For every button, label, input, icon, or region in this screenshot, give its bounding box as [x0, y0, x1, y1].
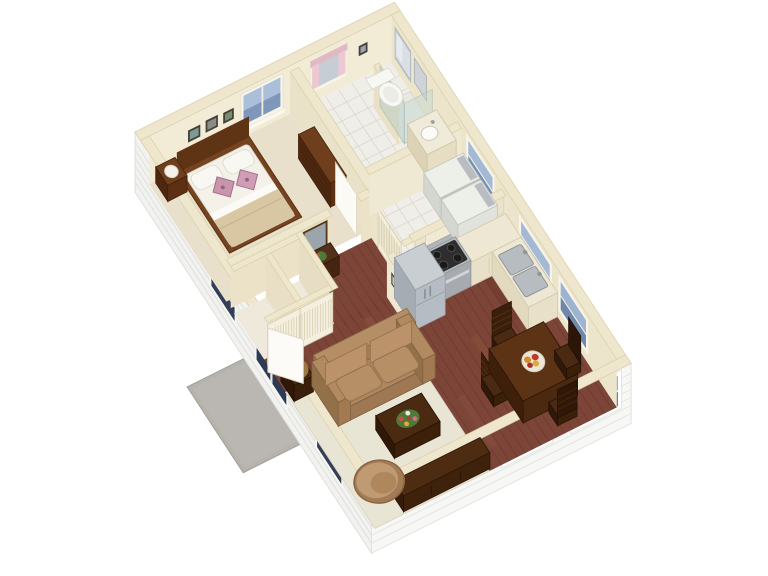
- floorplan-stage: [0, 0, 768, 576]
- bathroom-curtain-right: [339, 50, 346, 77]
- tv-console-panel-line: [460, 471, 461, 480]
- bedroom-window-mullion: [262, 86, 264, 116]
- apartment-3d-floorplan: [0, 0, 768, 576]
- cabinet-panel-line: [489, 257, 490, 273]
- bathroom-curtain-left: [312, 63, 319, 90]
- tv-console-panel-line: [431, 486, 432, 495]
- fridge-handle: [424, 289, 426, 300]
- fridge-handle: [429, 286, 431, 297]
